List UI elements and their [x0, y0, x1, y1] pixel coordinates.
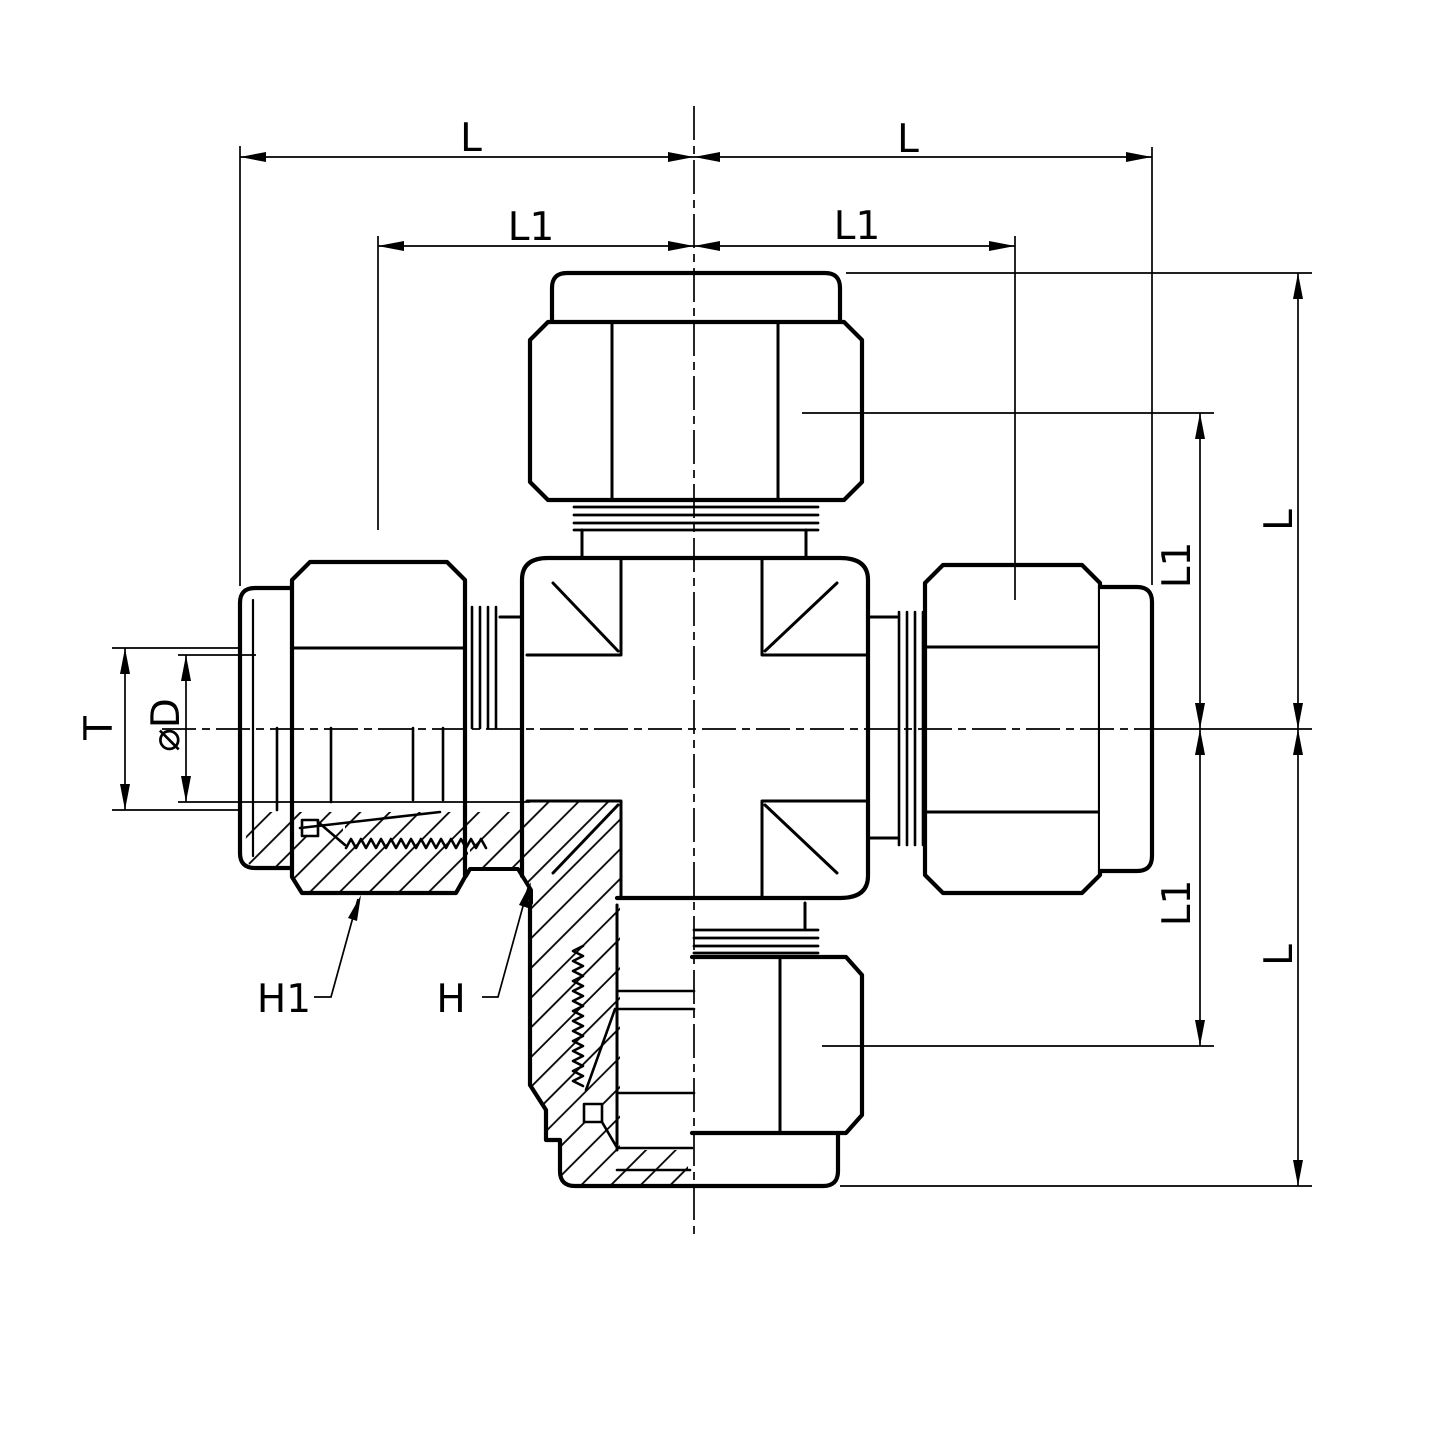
callout-label-H1: H1	[257, 977, 311, 1022]
dim-label-right-upper-L1: L1	[1155, 542, 1200, 589]
dim-label-right-lower-L1: L1	[1155, 880, 1200, 927]
dim-label-D: ⌀D	[144, 698, 189, 752]
top-nut-hex	[530, 322, 862, 500]
union-cross-fitting-drawing: L L1 L L1 L1 L L1 L T ⌀D H1 H	[0, 0, 1445, 1445]
dim-label-right-lower-L: L	[1257, 944, 1302, 966]
dim-label-top-left-L: L	[460, 116, 482, 161]
top-port	[530, 273, 862, 557]
dim-label-T: T	[77, 716, 122, 741]
drawing-canvas: L L1 L L1 L1 L L1 L T ⌀D H1 H	[0, 0, 1445, 1445]
bottom-ferrule	[584, 1104, 602, 1122]
top-cap	[552, 273, 840, 322]
callout-label-H: H	[436, 977, 465, 1022]
dim-label-right-upper-L: L	[1257, 509, 1302, 531]
dim-label-top-left-L1: L1	[508, 205, 555, 250]
dim-label-top-right-L: L	[897, 117, 919, 162]
bottom-nut-hex	[692, 957, 862, 1133]
dim-label-top-right-L1: L1	[834, 204, 881, 249]
